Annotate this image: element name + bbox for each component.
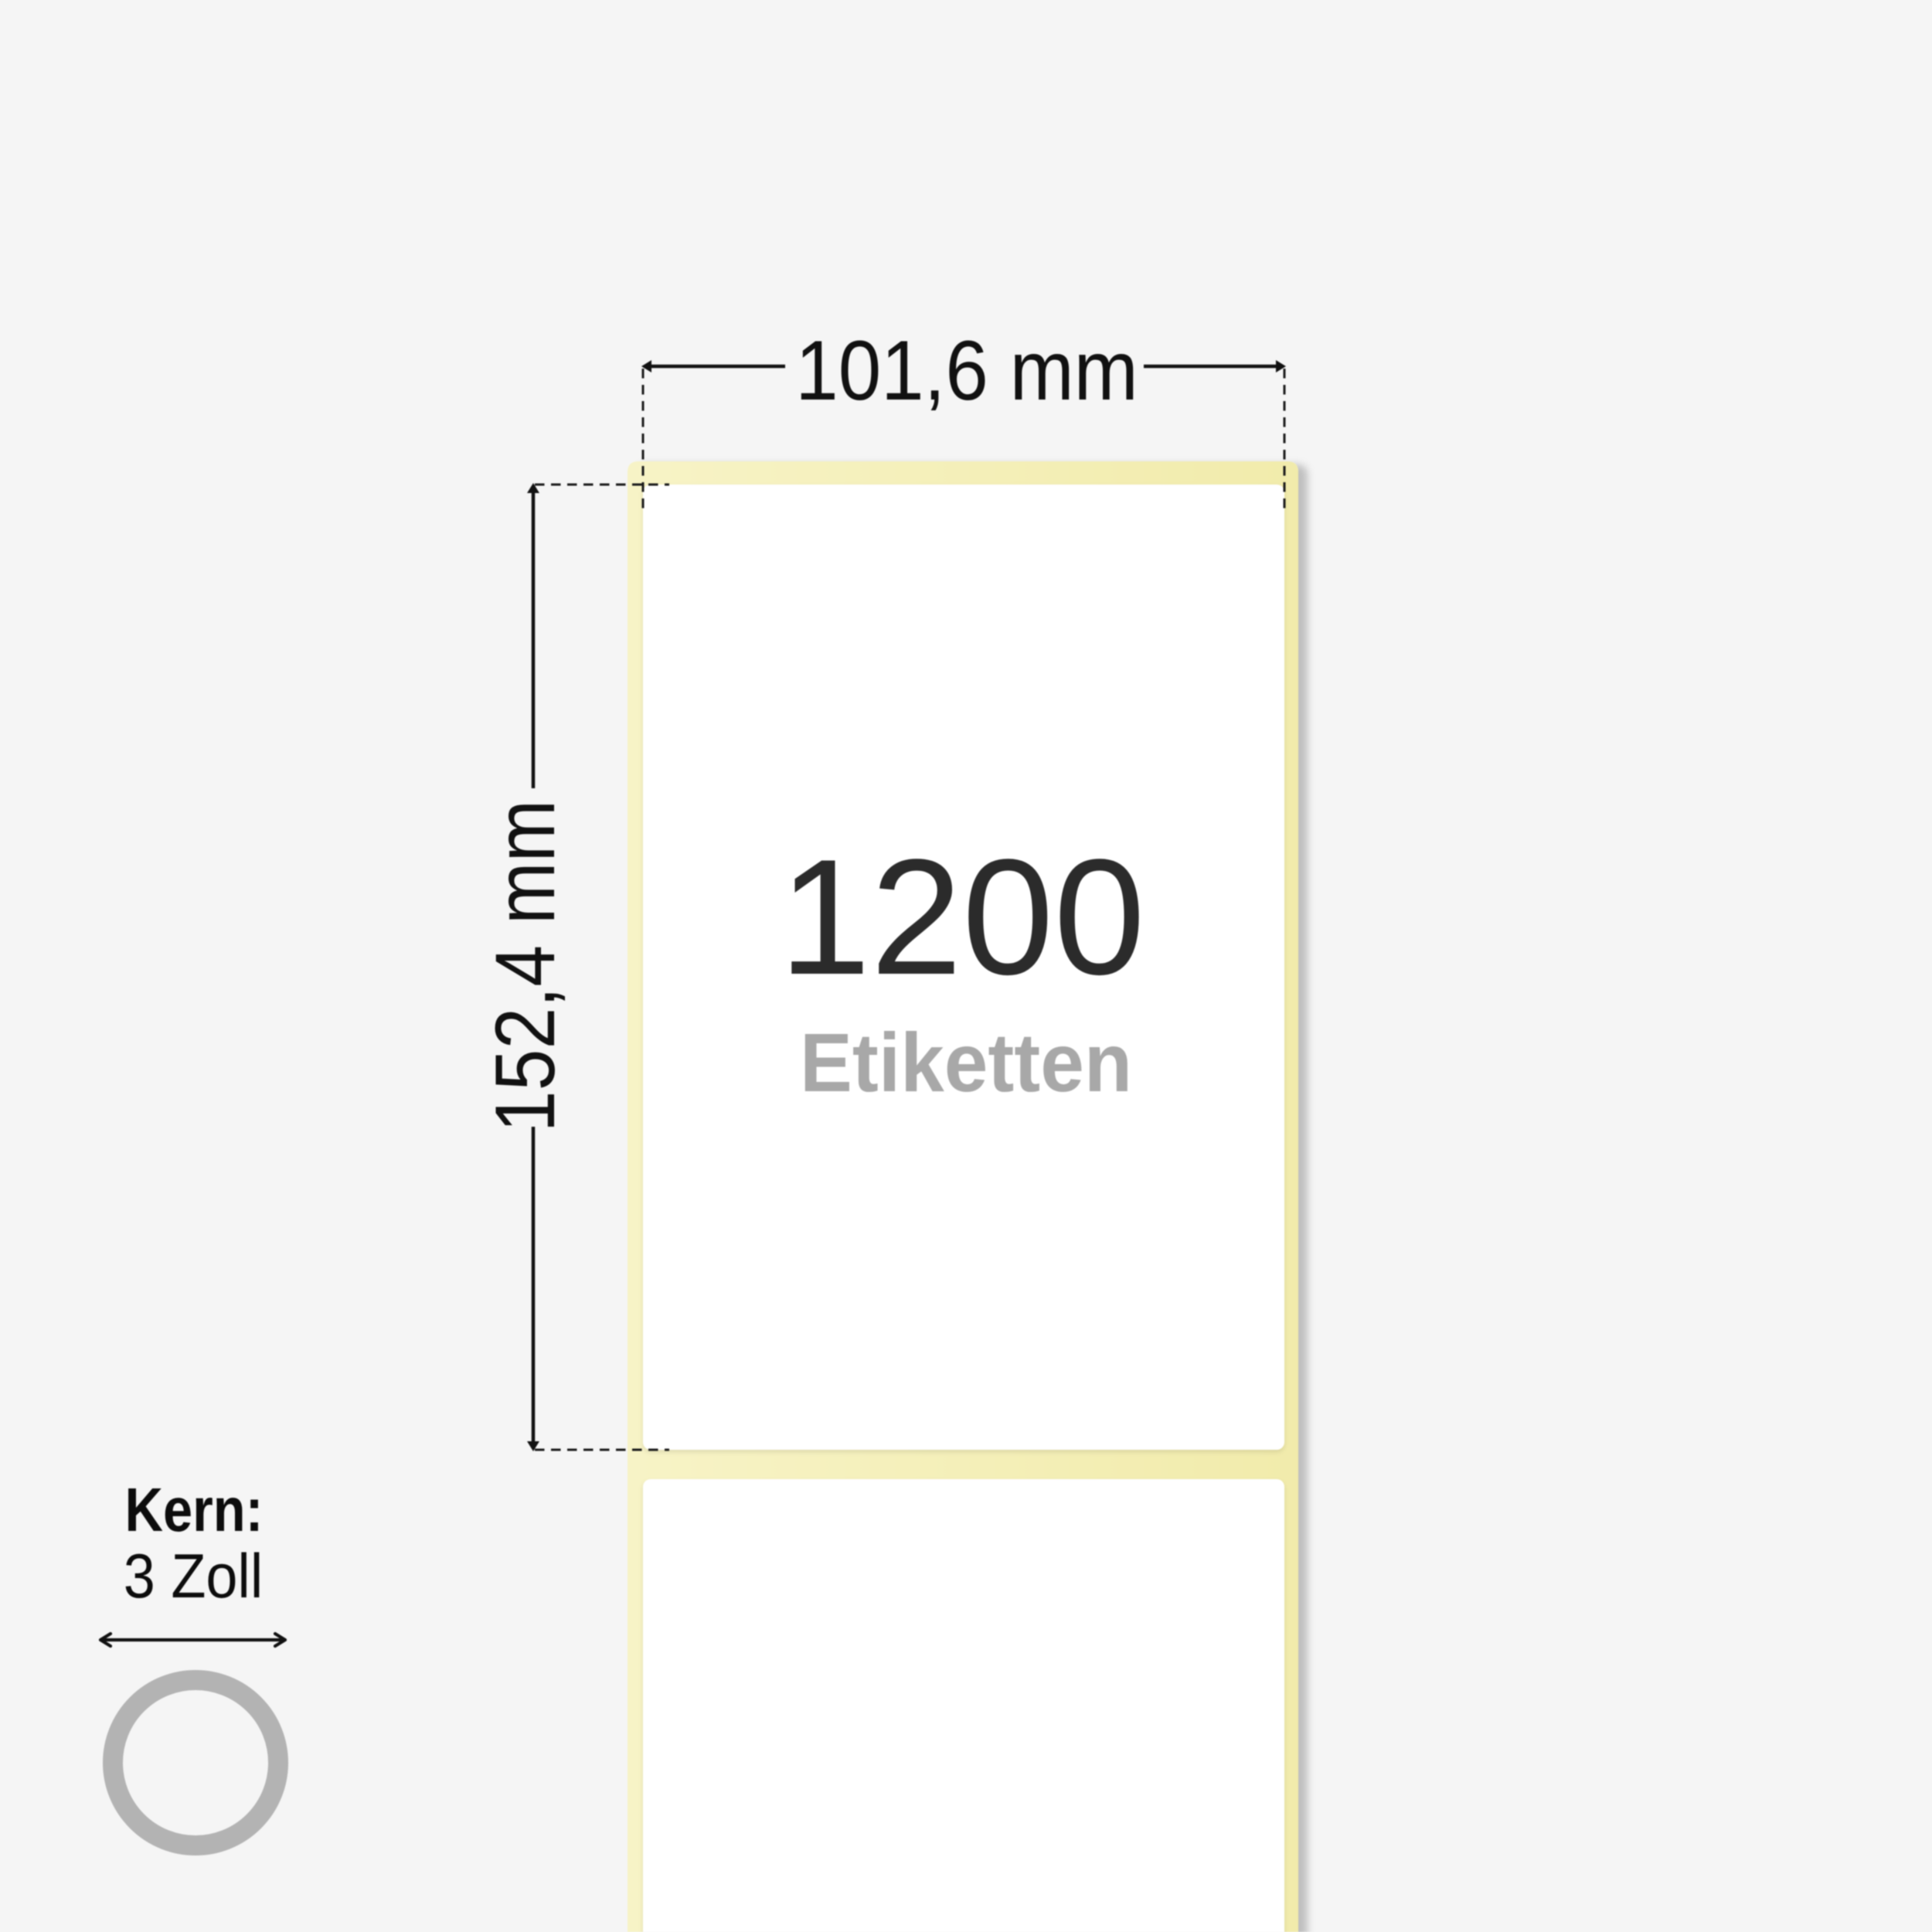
svg-text:101,6 mm: 101,6 mm	[795, 324, 1138, 419]
svg-text:Kern:: Kern:	[124, 1475, 263, 1544]
svg-text:1200: 1200	[779, 825, 1145, 1009]
svg-text:152,4 mm: 152,4 mm	[477, 800, 572, 1132]
svg-text:3 Zoll: 3 Zoll	[124, 1542, 263, 1611]
svg-text:Etiketten: Etiketten	[800, 1016, 1132, 1109]
